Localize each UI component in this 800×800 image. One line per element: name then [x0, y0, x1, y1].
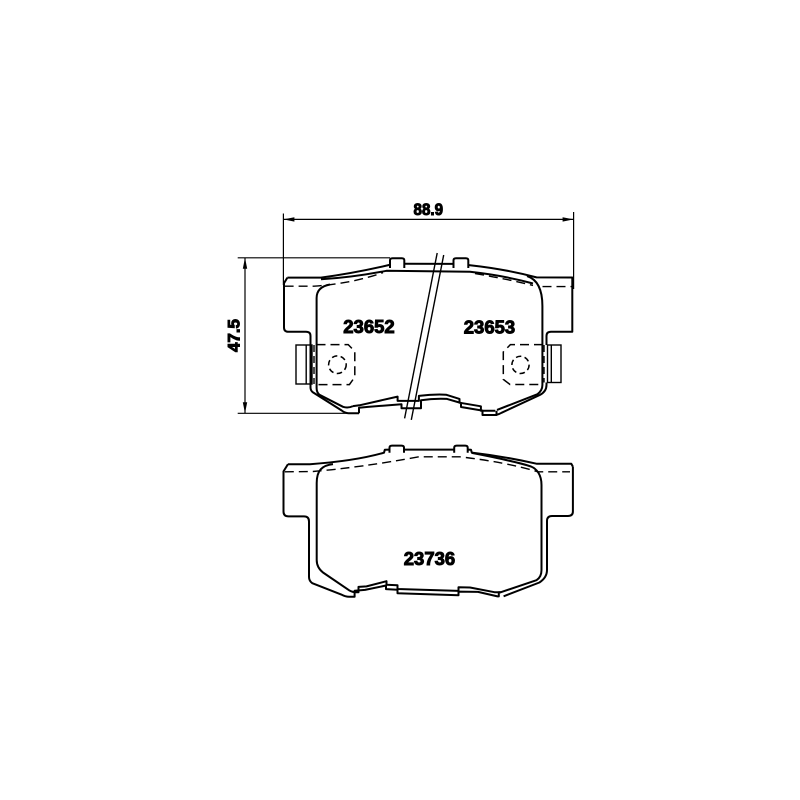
svg-text:47.5: 47.5 — [225, 319, 243, 352]
svg-text:23653: 23653 — [464, 316, 515, 337]
svg-text:23736: 23736 — [404, 548, 455, 569]
svg-text:88.9: 88.9 — [414, 201, 444, 219]
svg-text:23652: 23652 — [343, 316, 394, 337]
